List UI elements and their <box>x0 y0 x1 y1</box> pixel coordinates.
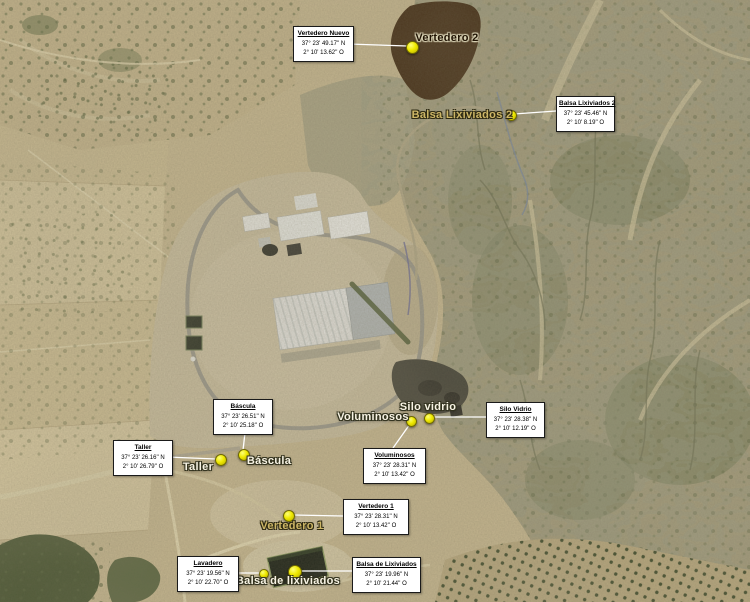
callout-balsa-de-lixiviados: Balsa de Lixiviados 37° 23' 19.96'' N 2°… <box>352 557 421 593</box>
callout-title: Balsa Lixiviados 2 <box>559 100 612 107</box>
callout-latitude: 37° 23' 19.56'' N <box>180 570 236 579</box>
satellite-map: Vertedero 2Balsa Lixiviados 2TallerBáscu… <box>0 0 750 602</box>
callout-silo-vidrio: Silo Vidrio 37° 23' 28.38'' N 2° 10' 12.… <box>486 402 545 438</box>
callout-longitude: 2° 10' 26.79'' O <box>116 463 170 472</box>
map-label-silo-vidrio: Silo vidrio <box>400 401 456 413</box>
callout-vertedero-nuevo: Vertedero Nuevo 37° 23' 49.17'' N 2° 10'… <box>293 26 354 62</box>
callout-longitude: 2° 10' 13.42'' O <box>366 471 423 480</box>
callout-longitude: 2° 10' 13.62'' O <box>296 49 351 58</box>
marker-silo-vidrio <box>424 413 435 424</box>
callout-title: Balsa de Lixiviados <box>355 561 418 568</box>
callout-title: Silo Vidrio <box>489 406 542 413</box>
callout-title: Vertedero 1 <box>346 503 406 510</box>
callout-latitude: 37° 23' 26.16'' N <box>116 454 170 463</box>
callout-taller: Taller 37° 23' 26.16'' N 2° 10' 26.79'' … <box>113 440 173 476</box>
callout-latitude: 37° 23' 26.51'' N <box>216 413 270 422</box>
callout-longitude: 2° 10' 22.70'' O <box>180 579 236 588</box>
map-label-bascula: Báscula <box>247 455 291 467</box>
callout-latitude: 37° 23' 28.38'' N <box>489 416 542 425</box>
callout-title: Vertedero Nuevo <box>296 30 351 37</box>
callout-latitude: 37° 23' 49.17'' N <box>296 40 351 49</box>
callout-latitude: 37° 23' 19.96'' N <box>355 571 418 580</box>
map-label-balsa-lixiviados-2: Balsa Lixiviados 2 <box>412 109 513 121</box>
callout-longitude: 2° 10' 12.19'' O <box>489 425 542 434</box>
callout-balsa-lixiviados-2: Balsa Lixiviados 2 37° 23' 45.46'' N 2° … <box>556 96 615 132</box>
callout-longitude: 2° 10' 8.19'' O <box>559 119 612 128</box>
callout-latitude: 37° 23' 45.46'' N <box>559 110 612 119</box>
map-label-vertedero-2: Vertedero 2 <box>415 32 478 44</box>
callout-bascula: Báscula 37° 23' 26.51'' N 2° 10' 25.18''… <box>213 399 273 435</box>
callout-title: Báscula <box>216 403 270 410</box>
callout-title: Lavadero <box>180 560 236 567</box>
map-label-vertedero-1: Vertedero 1 <box>260 520 323 532</box>
callout-lavadero: Lavadero 37° 23' 19.56'' N 2° 10' 22.70'… <box>177 556 239 592</box>
map-label-voluminosos: Voluminosos <box>337 411 409 423</box>
callout-latitude: 37° 23' 28.31'' N <box>346 513 406 522</box>
callout-longitude: 2° 10' 25.18'' O <box>216 422 270 431</box>
callout-vertedero-1: Vertedero 1 37° 23' 28.31'' N 2° 10' 13.… <box>343 499 409 535</box>
marker-taller <box>215 454 227 466</box>
callout-latitude: 37° 23' 28.31'' N <box>366 462 423 471</box>
callout-voluminosos: Voluminosos 37° 23' 28.31'' N 2° 10' 13.… <box>363 448 426 484</box>
callout-title: Voluminosos <box>366 452 423 459</box>
map-label-balsa-de-lixiviados: Balsa de lixiviados <box>236 575 340 587</box>
annotations-layer: Vertedero 2Balsa Lixiviados 2TallerBáscu… <box>0 0 750 602</box>
map-label-taller: Taller <box>183 461 213 473</box>
callout-longitude: 2° 10' 21.44'' O <box>355 580 418 589</box>
callout-title: Taller <box>116 444 170 451</box>
callout-longitude: 2° 10' 13.42'' O <box>346 522 406 531</box>
